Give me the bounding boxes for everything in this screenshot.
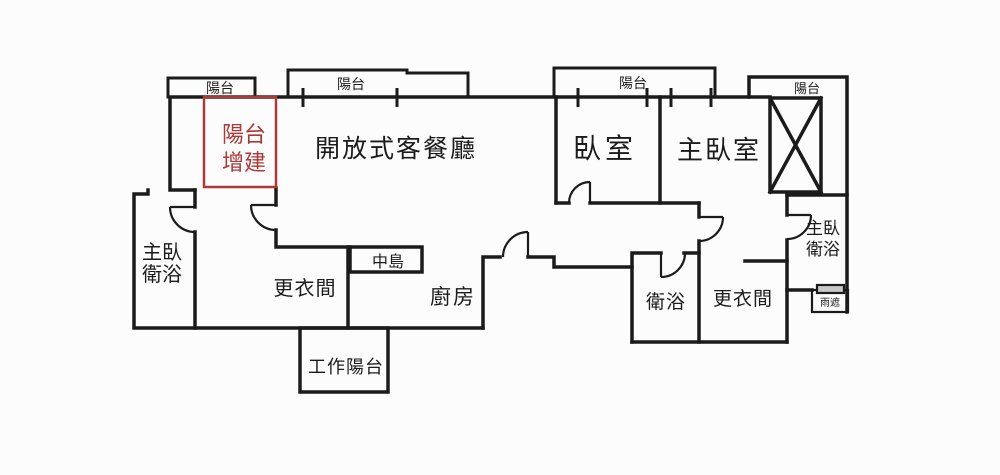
door-master-entry xyxy=(699,217,723,241)
wall-closet-left-entry xyxy=(276,188,350,247)
labels: 陽台 陽台 陽台 陽台 陽台 增建 開放式客餐廳 臥室 主臥室 主臥 衛浴 更衣… xyxy=(142,76,840,378)
masterbath-right-label-line1: 主臥 xyxy=(806,219,840,239)
door-bedroom xyxy=(569,182,590,203)
closet-left-label: 更衣間 xyxy=(274,276,337,300)
balcony-addition-label-line1: 陽台 xyxy=(222,123,266,148)
doors xyxy=(170,182,811,277)
bathroom-right-label: 衛浴 xyxy=(646,291,686,313)
door-masterbath-left xyxy=(170,207,195,232)
balcony1-label: 陽台 xyxy=(206,81,234,97)
door-bathroom-right xyxy=(661,253,685,277)
door-closet-left xyxy=(251,205,276,230)
masterbath-left-label-line1: 主臥 xyxy=(142,240,182,264)
shaft-x-diagonals xyxy=(770,98,821,192)
work-balcony-label: 工作陽台 xyxy=(308,357,384,378)
living-dining-label: 開放式客餐廳 xyxy=(315,134,477,163)
balcony3-label: 陽台 xyxy=(619,76,647,92)
floor-plan-canvas: 陽台 陽台 陽台 陽台 陽台 增建 開放式客餐廳 臥室 主臥室 主臥 衛浴 更衣… xyxy=(0,0,1000,475)
balcony2-label: 陽台 xyxy=(337,77,365,93)
rain-cover-label: 雨遮 xyxy=(820,296,840,309)
balcony-addition-label-line2: 增建 xyxy=(222,151,266,176)
masterbath-window-icon xyxy=(817,285,844,293)
closet-right-label: 更衣間 xyxy=(713,288,773,310)
floor-plan-page: 陽台 陽台 陽台 陽台 陽台 增建 開放式客餐廳 臥室 主臥室 主臥 衛浴 更衣… xyxy=(0,0,1000,475)
bedroom-label: 臥室 xyxy=(573,132,637,165)
masterbath-right-label-line2: 衛浴 xyxy=(806,240,840,260)
master-bedroom-label: 主臥室 xyxy=(677,136,761,166)
kitchen-label: 廚房 xyxy=(430,285,476,309)
balcony2-outline xyxy=(288,70,468,97)
island-label: 中島 xyxy=(372,252,404,271)
balcony4-label: 陽台 xyxy=(794,82,820,97)
door-kitchen xyxy=(503,232,528,257)
masterbath-left-label-line2: 衛浴 xyxy=(142,262,182,286)
wall-kitchen-east xyxy=(483,257,632,328)
